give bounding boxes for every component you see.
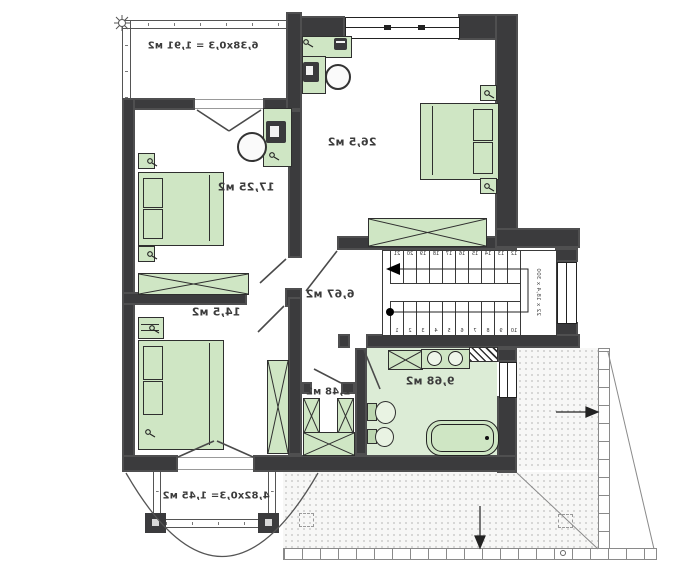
computer-monitor-icon [266, 121, 286, 143]
stair-step: 5 [443, 302, 456, 335]
room-label-closet: 2,48 м2 [306, 387, 351, 398]
door-threshold [178, 469, 253, 470]
stair-step: 8 [482, 302, 495, 335]
stair-flight-lower: 12345678910 [390, 301, 521, 335]
column [145, 513, 166, 533]
balcony-railing [166, 519, 270, 528]
room-label-bedroom-low: 14,5 м2 [191, 306, 240, 319]
sink-icon [448, 351, 463, 366]
wall [355, 348, 367, 455]
sink-icon [427, 351, 442, 366]
wall [122, 98, 135, 472]
wall [288, 297, 302, 455]
stair-step: 21 [391, 250, 404, 283]
stair-step: 20 [404, 250, 417, 283]
wall [338, 334, 350, 348]
office-chair [237, 132, 267, 162]
door-threshold [195, 99, 263, 100]
roof-marker [299, 513, 314, 527]
floor-plan: 21201918171615141312 12345678910 22 x 18… [0, 0, 700, 575]
door-threshold [178, 457, 253, 458]
roof-edge-bottom [283, 548, 657, 560]
nightstand [138, 246, 155, 262]
balcony-railing-top [122, 20, 288, 29]
wall [253, 455, 517, 472]
nightstand [480, 178, 497, 194]
wardrobe [303, 398, 320, 434]
stair-step: 7 [469, 302, 482, 335]
wall [497, 348, 517, 362]
wall [555, 248, 578, 262]
room-label-balcony-top: 6,38x0,3 = 1,91 м2 [147, 41, 258, 52]
room-label-hall: 6,67 м2 [305, 288, 354, 301]
washing-machine [388, 350, 423, 370]
window [557, 262, 577, 324]
bidet-icon [375, 427, 394, 447]
balcony-railing [153, 472, 161, 518]
bathtub [426, 420, 499, 456]
wardrobe [337, 398, 354, 434]
stair-step: 6 [456, 302, 469, 335]
computer-monitor-icon [303, 62, 319, 82]
door-threshold [195, 108, 263, 109]
stair-step: 1 [391, 302, 404, 335]
room-label-bedroom-mid: 17,25 м2 [218, 181, 275, 194]
balcony-railing-left [122, 20, 131, 98]
stair-step: 9 [495, 302, 508, 335]
terrace-upper [517, 348, 598, 470]
radiator [469, 347, 498, 362]
wall [495, 228, 580, 248]
stair-step: 2 [404, 302, 417, 335]
dresser [138, 317, 164, 339]
stair-step: 4 [430, 302, 443, 335]
stair-dimension-label: 22 x 18,4 x 300 [535, 268, 541, 316]
bed [138, 340, 224, 450]
wardrobe [303, 432, 355, 456]
room-label-balcony-bottom: 4,82x0,3= 1,45 м2 [162, 491, 269, 502]
printer-icon [334, 38, 347, 50]
window [345, 17, 460, 39]
stair-step: 18 [430, 250, 443, 283]
nightstand [480, 85, 497, 101]
stair-step: 17 [443, 250, 456, 283]
toilet-icon [375, 401, 396, 424]
roof-marker [558, 514, 573, 528]
room-label-bath: 9,68 м2 [405, 375, 454, 388]
stair-landing-edge [520, 250, 521, 334]
wardrobe [267, 360, 289, 454]
office-chair [325, 64, 351, 90]
stair-step: 14 [482, 250, 495, 283]
wall [122, 455, 178, 472]
column [258, 513, 279, 533]
wardrobe [138, 273, 249, 295]
bed [420, 103, 499, 180]
stair-step: 15 [469, 250, 482, 283]
wall [300, 16, 345, 38]
stair-step: 13 [495, 250, 508, 283]
stair-step: 16 [456, 250, 469, 283]
stair-flight-upper: 21201918171615141312 [390, 250, 521, 284]
stair-step: 19 [417, 250, 430, 283]
roof-edge-right [598, 348, 610, 551]
window [499, 362, 517, 398]
wall [366, 334, 580, 348]
nightstand [138, 153, 155, 169]
stair-step: 3 [417, 302, 430, 335]
terrace-lower [283, 472, 598, 548]
room-label-bedroom-large: 26,5 м2 [327, 136, 376, 149]
bed [138, 172, 224, 246]
wardrobe [368, 218, 487, 247]
